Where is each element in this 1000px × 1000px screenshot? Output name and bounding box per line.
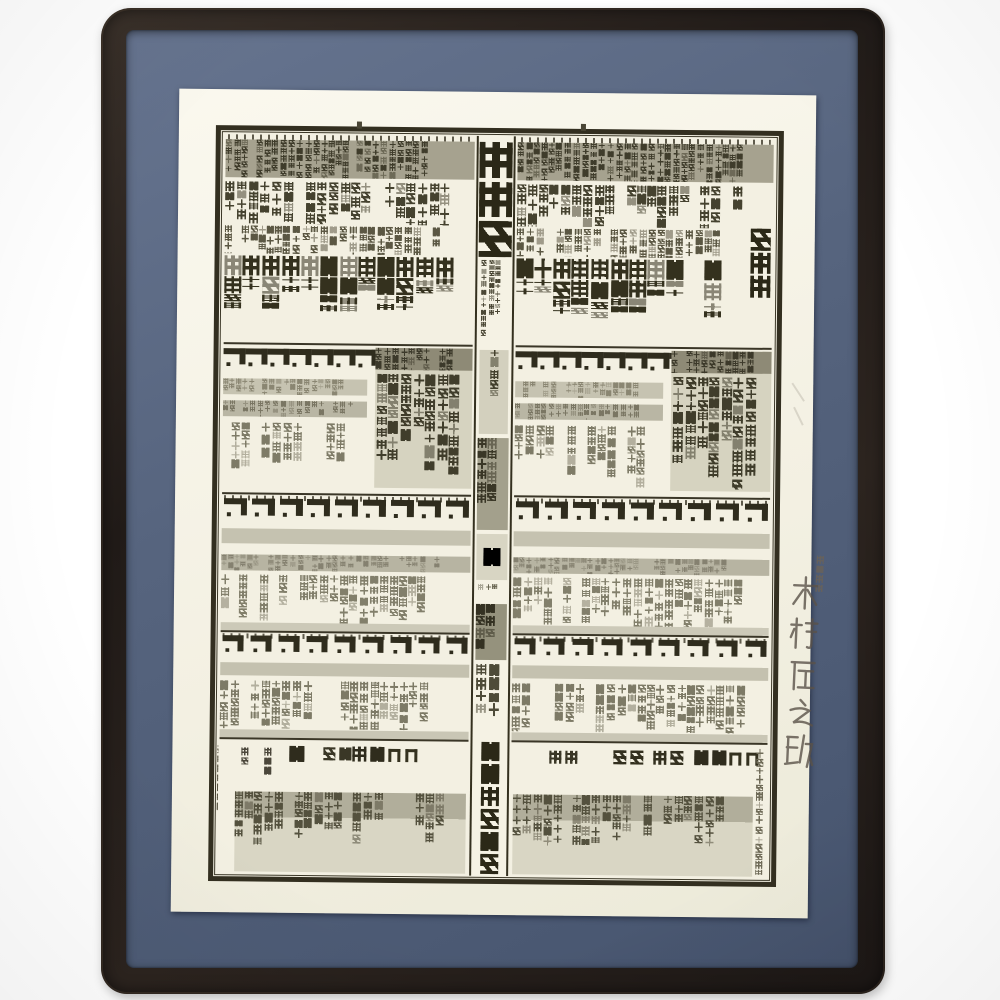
gray-strip [515,403,664,421]
gray-strip [514,531,770,549]
picture-frame: 主任 年寄 客 呼出し 床山 千穐萬歳大々叶 [101,8,885,994]
banzuke-print: 主任 年寄 客 呼出し 床山 千穐萬歳大々叶 [208,125,784,887]
dense-text-row [375,348,472,371]
dense-text-block [376,374,470,487]
center-tiny-text [478,584,505,600]
handwriting-name-strokes [781,572,822,781]
ditto-marks-row [515,351,664,379]
third-rank-band [513,495,770,636]
gray-strip [221,554,470,573]
ditto-marks-row [516,501,768,530]
gray-strip [222,528,471,546]
dense-text-row [517,228,747,258]
dense-text-row [517,142,773,183]
gray-strip [220,662,469,678]
label-auditor: 監事 [653,751,683,765]
fourth-rank-band [220,630,470,740]
label-director: 理事 [694,750,726,765]
sub-column-block [670,351,771,492]
pencil-mark [788,379,811,429]
ditto-marks-row [224,498,469,527]
edge-tiny-column [755,749,767,875]
top-rank-band: 白鵬 [516,136,774,348]
dense-text-block [672,377,769,490]
label-elder: 年寄 [323,747,351,760]
label-inspector: 監査 [613,750,643,764]
center-text-block [479,350,509,434]
top-rank-band [224,133,475,345]
second-rank-band [514,345,772,498]
center-text-block [477,438,509,530]
bracket-icon [388,749,400,762]
ditto-marks-row [222,635,467,662]
gray-strip [223,378,368,396]
dense-text-row [225,139,474,180]
register-mark [357,122,362,129]
third-rank-band [221,492,471,633]
sub-column-block [374,348,473,489]
center-column: 蒙御免 日本相撲協会 [469,136,516,876]
second-rank-band [222,342,473,495]
west-half: 主任 年寄 客 呼出し 床山 千穐萬歳大々叶 [218,133,475,876]
fourth-rank-band [512,633,769,743]
wrestler-names-row [224,255,474,343]
dense-text-row [225,181,474,226]
officials-names-block [512,794,753,877]
print-content: 主任 年寄 客 呼出し 床山 千穐萬歳大々叶 [216,133,776,879]
center-text-block [475,604,507,660]
ditto-marks-row [514,638,766,665]
gray-strip [512,665,768,681]
east-half: 白鵬 [510,136,774,879]
label-committee: 委員 [549,751,577,764]
edge-phrase: 千穐萬歳大々叶 [216,745,218,810]
bracket-icon [729,752,741,765]
association-name: 日本相撲協会 [471,742,507,874]
speckle-text-row [221,574,470,625]
officials-band-west: 主任 年寄 客 呼出し 床山 千穐萬歳大々叶 [218,737,468,876]
photo-of-framed-banzuke: 主任 年寄 客 呼出し 床山 千穐萬歳大々叶 [0,0,1000,1000]
gray-strip [223,400,368,418]
handwriting-annotation: 五十七代 木村庄之助 [779,554,831,816]
banzuke-paper: 主任 年寄 客 呼出し 床山 千穐萬歳大々叶 [171,89,817,919]
label-tokoyama: 床山 [241,747,248,764]
dense-text-row [225,225,474,256]
title-sub-text [481,260,509,346]
east-yokozuna-name: 白鵬 [750,229,771,298]
dense-text-row [672,351,772,374]
gray-strip [515,381,664,399]
bracket-marks [388,749,417,762]
bracket-marks [729,752,758,765]
label-guest: 客 [289,746,304,762]
gray-strip [513,557,769,576]
wrestler-names-row [516,258,747,345]
label-chief: 主任 [352,747,384,762]
officials-band-east: 理事 監事 監査 委員 [510,740,767,879]
speckle-text-row [514,425,663,489]
speckle-text-row [512,683,768,734]
banzuke-title: 蒙御免 [478,142,514,256]
label-yobidashi: 呼出し [264,748,271,775]
center-text-block [476,664,506,736]
register-mark [581,124,586,131]
center-light-block [476,534,507,580]
speckle-text-row [220,680,469,731]
mat-board: 主任 年寄 客 呼出し 床山 千穐萬歳大々叶 [126,30,858,968]
speckle-text-row [513,577,769,628]
officials-names-block [234,791,466,873]
speckle-text-row [222,422,367,486]
dense-text-row [517,184,773,229]
ditto-marks-row [223,348,368,376]
bracket-icon [405,749,417,762]
